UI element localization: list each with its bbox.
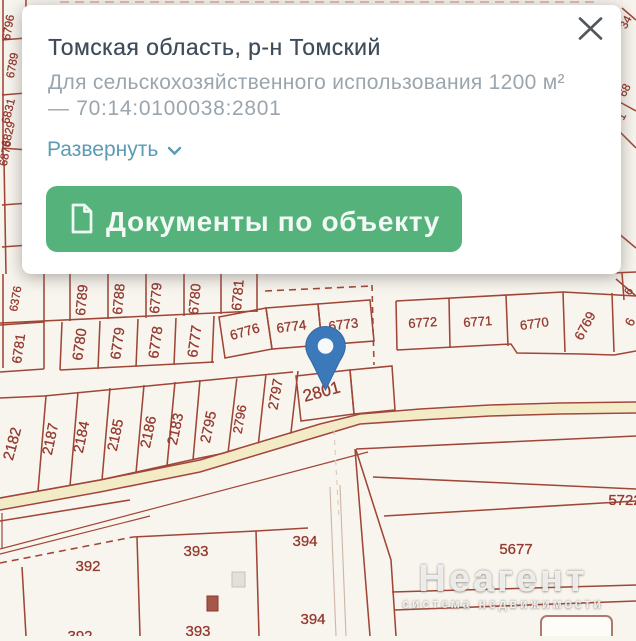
svg-text:2797: 2797 <box>264 377 285 411</box>
svg-text:394: 394 <box>292 533 317 550</box>
svg-text:6780: 6780 <box>185 283 204 316</box>
svg-text:6778: 6778 <box>146 325 166 359</box>
svg-text:392: 392 <box>67 628 92 636</box>
svg-text:2182: 2182 <box>0 426 25 463</box>
svg-text:2184: 2184 <box>71 420 93 455</box>
svg-text:6780: 6780 <box>70 327 90 361</box>
svg-text:6769: 6769 <box>571 309 598 343</box>
svg-text:394: 394 <box>300 611 325 628</box>
svg-text:6779: 6779 <box>146 282 165 315</box>
svg-text:6376: 6376 <box>8 285 24 312</box>
svg-text:2795: 2795 <box>198 410 220 445</box>
svg-text:6777: 6777 <box>185 324 205 358</box>
svg-text:6789: 6789 <box>5 52 21 79</box>
svg-text:6771: 6771 <box>463 313 493 330</box>
svg-text:392: 392 <box>75 558 100 575</box>
svg-text:6772: 6772 <box>408 314 438 331</box>
svg-text:6770: 6770 <box>519 314 550 333</box>
svg-text:2185: 2185 <box>105 418 127 453</box>
svg-text:6774: 6774 <box>276 317 308 336</box>
svg-text:6779: 6779 <box>108 326 128 360</box>
svg-text:6788: 6788 <box>109 283 128 316</box>
svg-text:6789: 6789 <box>72 284 91 317</box>
svg-text:6876: 6876 <box>0 140 14 167</box>
svg-text:5722: 5722 <box>608 492 636 509</box>
svg-text:393: 393 <box>185 623 210 636</box>
svg-text:6781: 6781 <box>9 333 28 365</box>
svg-text:6781: 6781 <box>228 279 247 312</box>
svg-text:6: 6 <box>622 315 636 328</box>
svg-text:393: 393 <box>183 543 208 560</box>
svg-text:5677: 5677 <box>499 541 532 558</box>
svg-text:2183: 2183 <box>165 412 187 447</box>
svg-text:6776: 6776 <box>228 320 261 343</box>
